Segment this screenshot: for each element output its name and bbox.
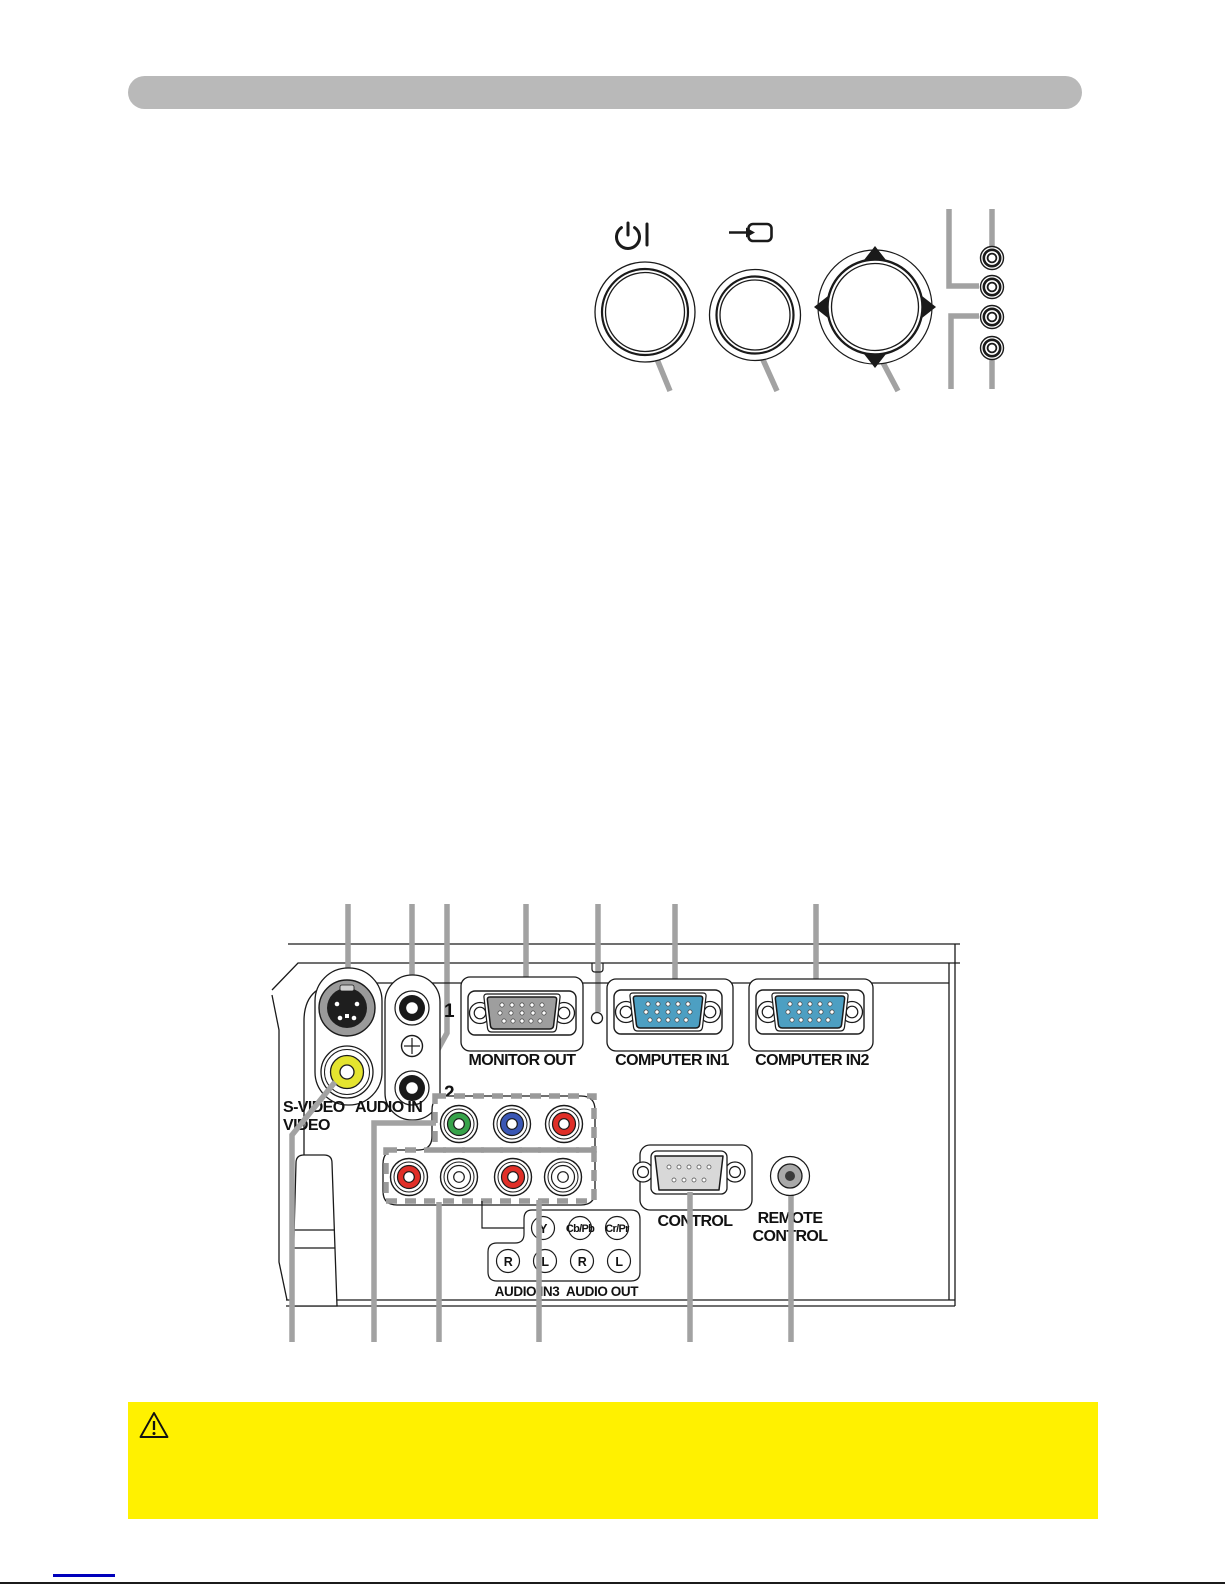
audio-out-r-label: R xyxy=(578,1255,587,1269)
monitor-out-port xyxy=(468,991,576,1035)
page-edge-artifact xyxy=(0,1582,1225,1584)
audio-out-l-label: L xyxy=(615,1255,623,1269)
audio-out-l-jack xyxy=(545,1159,582,1196)
led-indicator-4 xyxy=(981,337,1004,360)
rear-panel-diagram: 1 2 MONITOR OUT COMPUTER IN1 COMPUTER IN… xyxy=(265,900,965,1345)
component-cr-pr-jack xyxy=(546,1106,583,1143)
led-indicator-2 xyxy=(981,276,1004,299)
audio-in3-r-label: R xyxy=(504,1255,513,1269)
s-video-port xyxy=(319,980,375,1036)
component-cb-pb-jack xyxy=(494,1106,531,1143)
standby-on-button xyxy=(595,223,695,362)
warning-box xyxy=(128,1402,1098,1519)
audio-out-label: AUDIO OUT xyxy=(566,1284,639,1299)
computer-in2-port xyxy=(756,990,864,1034)
led-indicator-1 xyxy=(981,247,1004,270)
power-icon xyxy=(617,223,648,249)
control-label: CONTROL xyxy=(658,1213,734,1230)
header-bar xyxy=(128,76,1082,109)
computer-in1-port xyxy=(614,990,722,1034)
jack-label-bubble: Y Cb/Pb Cr/Pr R L R L AUDIO IN3 AUDIO OU… xyxy=(488,1210,640,1299)
computer-in2-label: COMPUTER IN2 xyxy=(755,1052,869,1069)
monitor-out-label: MONITOR OUT xyxy=(469,1052,577,1069)
s-video-video-group xyxy=(315,968,382,1105)
manual-page: 1 2 MONITOR OUT COMPUTER IN1 COMPUTER IN… xyxy=(0,0,1225,1585)
input-arrow-icon xyxy=(729,224,772,241)
cr-pr-label: Cr/Pr xyxy=(605,1223,630,1235)
audio-in3-l-label: L xyxy=(541,1255,549,1269)
audio-in3-l-jack xyxy=(441,1159,478,1196)
input-button xyxy=(710,224,801,361)
directional-pad xyxy=(814,246,936,368)
warning-triangle-icon xyxy=(138,1410,170,1440)
audio-in3-r-jack xyxy=(391,1159,428,1196)
cb-pb-label: Cb/Pb xyxy=(566,1223,595,1235)
link-underline[interactable] xyxy=(53,1574,115,1577)
audio-in-label: AUDIO IN xyxy=(355,1099,422,1116)
control-panel-diagram xyxy=(555,195,1015,395)
audio-out-r-jack xyxy=(495,1159,532,1196)
audio-in3-label: AUDIO IN3 xyxy=(495,1284,561,1299)
computer-in1-label: COMPUTER IN1 xyxy=(615,1052,729,1069)
reset-hole xyxy=(592,1013,603,1024)
remote-control-port xyxy=(771,1157,810,1196)
elevator-foot xyxy=(292,1155,337,1306)
audio-in-1-jack xyxy=(395,991,429,1025)
led-indicator-3 xyxy=(981,306,1004,329)
component-y-jack xyxy=(441,1106,478,1143)
audio-in-1-label: 1 xyxy=(444,1001,455,1022)
screw-icon xyxy=(402,1036,423,1057)
